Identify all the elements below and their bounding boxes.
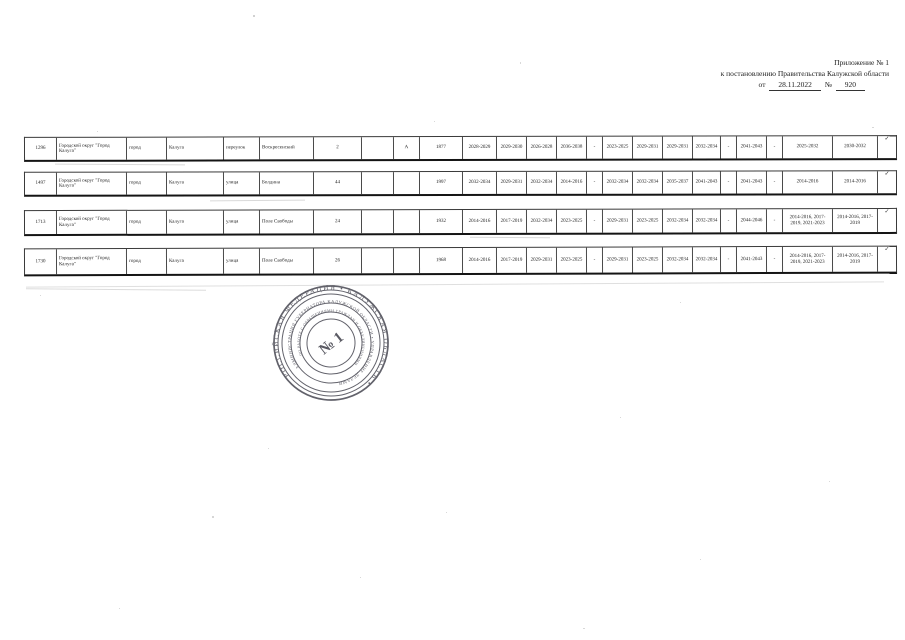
table-row: 1713 Городской округ "Город Калуга" горо… [24, 208, 897, 236]
cell-period: 2029-2031 [633, 137, 663, 159]
cell-period: 2032-2034 [663, 209, 693, 232]
cell-street-type: улица [224, 249, 260, 274]
document-date: 28.11.2022 [769, 79, 820, 91]
cell-settlement-type: город [127, 249, 167, 274]
cell-period-multi: 2014-2016, 2017-2019, 2021-2023 [783, 209, 833, 232]
cell-period: 2017-2019 [497, 248, 527, 273]
checkmark: ✓ [878, 209, 896, 232]
cell-street: Поле Свободы [260, 210, 314, 233]
cell-street: Поле Свободы [260, 248, 314, 273]
scan-noise-dot [434, 121, 435, 122]
cell-period: 2044-2046 [737, 209, 767, 232]
cell-period: 2014-2016 [463, 210, 497, 233]
scan-artifact-line [26, 288, 206, 291]
cell-period: 2014-2016 [557, 172, 587, 194]
cell-period: 2029-2031 [603, 210, 633, 233]
header-line-date-number: от 28.11.2022 № 920 [721, 79, 889, 91]
cell-street-type: улица [224, 172, 260, 194]
cell-house: 2 [314, 137, 362, 159]
cell-year-built: 1968 [420, 248, 463, 273]
cell-period: 2036-2038 [557, 137, 587, 159]
cell-period: 2032-2034 [527, 210, 557, 233]
cell-period: 2026-2028 [527, 137, 557, 159]
cell-period: 2030-2032 [833, 136, 878, 158]
cell-settlement: Калуга [167, 249, 224, 274]
cell-period: 2032-2034 [463, 172, 497, 194]
cell-street-type: улица [224, 210, 260, 233]
checkmark: ✓ [878, 247, 896, 272]
scan-noise-dot [520, 62, 521, 64]
cell-municipality: Городской округ "Город Калуга" [57, 138, 127, 160]
scan-noise-dot [872, 127, 874, 128]
cell-house: 26 [314, 248, 362, 273]
scan-noise-dot [680, 302, 681, 303]
cell-period: 2032-2034 [693, 247, 721, 272]
cell-row-number: 1296 [25, 138, 57, 160]
cell-period: 2014-2016 [833, 171, 878, 193]
cell-row-number: 1497 [25, 173, 57, 195]
cell-period: 2029-2031 [527, 248, 557, 273]
cell-period: 2017-2019 [497, 210, 527, 233]
table-row: 1730 Городской округ "Город Калуга" горо… [24, 246, 897, 277]
scan-noise-dot [212, 516, 214, 518]
cell-period: 2014-2016 [463, 248, 497, 273]
cell-settlement: Калуга [167, 211, 224, 234]
cell-year-built: 1997 [420, 172, 463, 194]
header-line-appendix: Приложение № 1 [721, 57, 889, 68]
cell-period: - [721, 136, 737, 158]
cell-house: 24 [314, 210, 362, 233]
cell-period: 2023-2025 [633, 210, 663, 233]
cell-street: Болдина [260, 172, 314, 194]
cell-settlement-type: город [127, 138, 167, 160]
cell-period: - [721, 247, 737, 272]
document-header: Приложение № 1 к постановлению Правитель… [721, 57, 889, 91]
cell-period: - [767, 209, 783, 232]
cell-period: 2029-2031 [663, 137, 693, 159]
cell-period: - [767, 136, 783, 158]
cell-period: - [721, 172, 737, 194]
cell-municipality: Городской округ "Город Калуга" [57, 249, 127, 274]
cell-settlement-type: город [127, 173, 167, 195]
cell-period: 2032-2034 [663, 247, 693, 272]
stamp-center-number: № 1 [316, 329, 347, 358]
scan-noise-dot [700, 559, 701, 560]
cell-house: 44 [314, 172, 362, 194]
cell-period: 2041-2043 [737, 136, 767, 158]
cell-letter [394, 210, 420, 233]
cell-municipality: Городской округ "Город Калуга" [57, 173, 127, 195]
scan-noise-dot [119, 608, 120, 609]
cell-period: 2032-2034 [527, 172, 557, 194]
cell-period-multi: 2014-2016, 2017-2019 [833, 209, 878, 232]
scan-noise-dot [583, 628, 585, 629]
cell-period: 2029-2031 [497, 172, 527, 194]
cell-blank [362, 210, 394, 233]
header-line-resolution: к постановлению Правительства Калужской … [721, 68, 889, 79]
cell-year-built: 1932 [420, 210, 463, 233]
scan-noise-dot [620, 417, 621, 418]
cell-period-multi: 2014-2016, 2017-2019 [833, 247, 878, 272]
cell-period: - [587, 137, 603, 159]
scan-artifact-line [26, 281, 884, 287]
cell-period: 2028-2029 [463, 137, 497, 159]
cell-period: 2025-2032 [783, 136, 833, 158]
cell-municipality: Городской округ "Город Калуга" [57, 211, 127, 234]
cell-blank [362, 172, 394, 194]
official-stamp: РОССИЙСКАЯ ФЕДЕРАЦИЯ • КАЛУЖСКАЯ ОБЛАСТЬ… [268, 280, 394, 406]
cell-letter [394, 172, 420, 194]
cell-row-number: 1713 [25, 211, 57, 234]
scan-noise-dot [97, 131, 98, 132]
scan-noise-dot [829, 481, 830, 482]
cell-period: 2014-2016 [783, 171, 833, 193]
cell-period: 2023-2025 [557, 210, 587, 233]
cell-period: - [767, 247, 783, 272]
checkmark: ✓ [878, 136, 896, 158]
scan-noise-dot [446, 512, 447, 513]
checkmark: ✓ [878, 171, 896, 193]
scan-artifact-line [470, 237, 550, 238]
cell-period: 2023-2025 [633, 247, 663, 272]
cell-period: 2023-2025 [557, 248, 587, 273]
cell-street-type: переулок [224, 137, 260, 159]
scan-noise-dot [360, 577, 361, 578]
cell-period: 2029-2031 [603, 247, 633, 272]
cell-street: Воскресенский [260, 137, 314, 159]
cell-blank [362, 137, 394, 159]
cell-letter [394, 248, 420, 273]
cell-period: - [721, 209, 737, 232]
scan-artifact-line [210, 200, 305, 202]
cell-settlement: Калуга [167, 137, 224, 159]
cell-settlement: Калуга [167, 172, 224, 194]
cell-period: 2041-2043 [737, 247, 767, 272]
cell-period: 2032-2034 [693, 209, 721, 232]
cell-year-built: 1877 [420, 137, 463, 159]
cell-period: - [767, 171, 783, 193]
scan-noise-dot [268, 448, 269, 449]
cell-period: - [587, 248, 603, 273]
cell-period-multi: 2014-2016, 2017-2019, 2021-2023 [783, 247, 833, 272]
cell-period: 2029-2030 [497, 137, 527, 159]
number-sign: № [825, 80, 832, 89]
scan-noise-dot [253, 15, 255, 17]
cell-period: 2032-2034 [693, 136, 721, 158]
scan-noise-dot [40, 295, 41, 296]
cell-period: 2041-2043 [693, 172, 721, 194]
cell-period: 2032-2034 [633, 172, 663, 194]
table-row: 1296 Городской округ "Город Калуга" горо… [24, 135, 897, 162]
cell-period: - [587, 172, 603, 194]
document-number: 920 [836, 79, 865, 91]
cell-period: 2041-2043 [737, 171, 767, 193]
cell-period: 2023-2025 [603, 137, 633, 159]
scan-artifact-line [55, 164, 185, 166]
from-label: от [759, 80, 766, 89]
cell-period: 2035-2037 [663, 172, 693, 194]
cell-letter: А [394, 137, 420, 159]
cell-settlement-type: город [127, 211, 167, 234]
cell-period: 2032-2034 [603, 172, 633, 194]
cell-row-number: 1730 [25, 249, 57, 274]
scanned-document-page: Приложение № 1 к постановлению Правитель… [0, 0, 905, 640]
table-row: 1497 Городской округ "Город Калуга" горо… [24, 170, 897, 197]
cell-period: - [587, 210, 603, 233]
cell-blank [362, 248, 394, 273]
